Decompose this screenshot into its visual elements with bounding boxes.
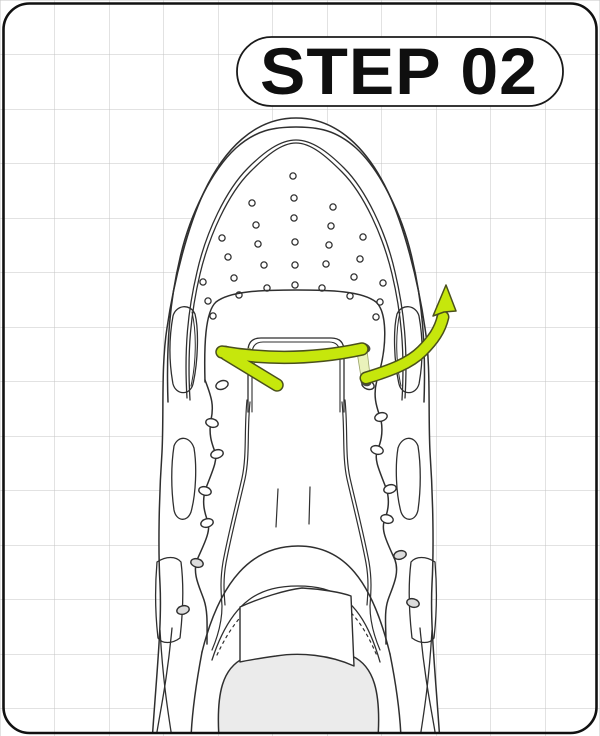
perforation-dot — [357, 256, 363, 262]
perforation-dot — [328, 223, 334, 229]
perforation-dot — [290, 173, 296, 179]
perforation-dot — [292, 262, 298, 268]
perforation-dot — [351, 274, 357, 280]
perforation-dot — [291, 195, 297, 201]
perforation-dot — [261, 262, 267, 268]
perforation-dot — [373, 314, 379, 320]
perforation-dot — [330, 204, 336, 210]
perforation-dot — [380, 280, 386, 286]
perforation-dot — [292, 282, 298, 288]
perforation-dot — [231, 275, 237, 281]
perforation-dot — [200, 279, 206, 285]
perforation-dot — [291, 215, 297, 221]
perforation-dot — [249, 200, 255, 206]
footbed — [218, 649, 378, 736]
perforation-dot — [323, 261, 329, 267]
perforation-dot — [205, 298, 211, 304]
lacing-step-diagram: STEP 02 — [0, 0, 600, 736]
step-badge-label: STEP 02 — [260, 34, 538, 108]
perforation-dot — [326, 242, 332, 248]
diagram-canvas: STEP 02 — [0, 0, 600, 736]
perforation-dot — [225, 254, 231, 260]
perforation-dot — [210, 313, 216, 319]
perforation-dot — [360, 234, 366, 240]
step-badge: STEP 02 — [237, 34, 563, 108]
perforation-dot — [292, 239, 298, 245]
perforation-dot — [255, 241, 261, 247]
perforation-dot — [253, 222, 259, 228]
perforation-dot — [219, 235, 225, 241]
tongue-label-patch — [240, 588, 354, 666]
